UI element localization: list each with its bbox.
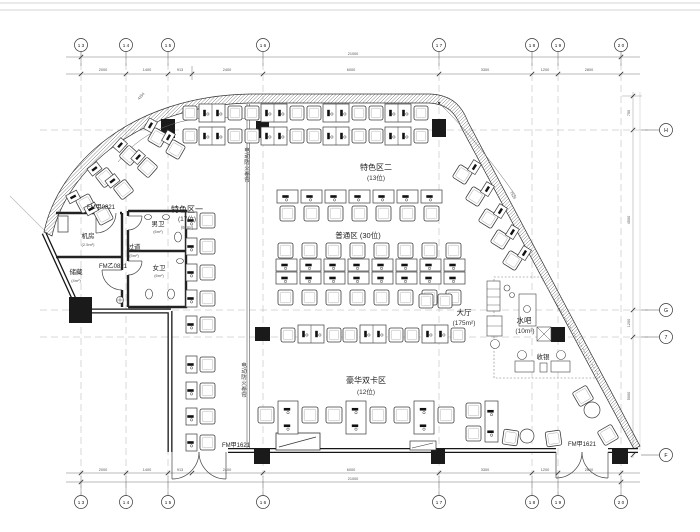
chair — [183, 106, 197, 120]
chair — [352, 106, 366, 120]
desk — [346, 401, 366, 434]
grid-bubble-top-2: 1 5 — [165, 43, 172, 48]
column — [255, 327, 270, 341]
room-label-jifang: 机房 — [82, 231, 95, 240]
chair — [302, 243, 317, 258]
zone-label-tese1-name: 特色区一 — [171, 204, 203, 214]
chair — [200, 409, 215, 424]
floor-plan-drawing: 1 3 1 4 1 5 1 6 1 7 1 8 1 9 2 0 1 3 1 4 … — [0, 0, 700, 532]
grid-bubble-bottom-5: 1 8 — [529, 500, 536, 505]
chair — [350, 290, 365, 305]
entry-mats — [276, 433, 436, 450]
chair — [278, 290, 293, 305]
grid-bubble-bottom-1: 1 4 — [123, 500, 130, 505]
dim-top-0: 2000 — [99, 68, 107, 72]
desk — [277, 190, 298, 203]
grid-bubble-bottom-3: 1 6 — [260, 500, 267, 505]
chair — [326, 290, 341, 305]
desk — [186, 434, 197, 451]
desk — [396, 259, 417, 271]
chair — [424, 206, 439, 221]
chair — [438, 294, 452, 308]
desk — [324, 272, 345, 284]
room-label-nvwei: 女卫 — [153, 263, 167, 272]
grid-bubble-top-5: 1 8 — [529, 43, 536, 48]
fire-shutter-label-lower: 电动防火卷帘 — [241, 361, 247, 399]
desk — [300, 259, 321, 271]
grid-bubble-right-f: F — [664, 453, 667, 459]
grid-bubble-top-7: 2 0 — [618, 43, 625, 48]
chair — [451, 328, 465, 342]
room-label-chucang-area: (4m²) — [71, 278, 81, 283]
desk — [298, 325, 324, 343]
chair — [302, 290, 317, 305]
zone-label-tese2-count: (13位) — [367, 173, 385, 182]
table — [584, 402, 600, 418]
chair — [370, 407, 386, 423]
chair — [374, 290, 389, 305]
grid-bubble-top-0: 1 3 — [78, 43, 85, 48]
zone-label-tese1-count: (17位) — [178, 214, 196, 223]
column — [612, 449, 628, 464]
chair — [200, 265, 215, 280]
desk — [414, 401, 434, 434]
chair — [466, 426, 481, 441]
chair — [545, 430, 562, 447]
grid-bubble-right-h: H — [664, 128, 668, 134]
dim-top-2: 913 — [177, 68, 183, 72]
chair — [290, 106, 304, 120]
grid-bubble-top-6: 1 9 — [555, 43, 562, 48]
door-label-fm-jia-1621-right: FM甲1621 — [568, 441, 597, 448]
chair — [304, 206, 319, 221]
desk — [199, 104, 225, 122]
desk — [261, 104, 287, 122]
desk — [372, 272, 393, 284]
dim-top-6: 1200 — [541, 68, 549, 72]
linework-layer — [0, 3, 700, 509]
dim-bottom-5: 3300 — [481, 468, 489, 472]
dim-right-0: 750 — [627, 110, 631, 116]
desk — [360, 325, 386, 343]
chair — [281, 328, 295, 342]
door-label-fm-yi-0821: FM乙0821 — [99, 263, 128, 270]
grid-bubble-bottom-2: 1 5 — [165, 500, 172, 505]
door-label-fm-jia-0821: FM甲0821 — [87, 204, 116, 211]
zone-label-putong: 普通区 (30位) — [335, 230, 381, 240]
grid-bubble-top-3: 1 6 — [260, 43, 267, 48]
dim-bottom-3: 2400 — [223, 468, 231, 472]
chair — [502, 429, 519, 446]
chair — [327, 328, 341, 342]
dim-top-overall: 21000 — [348, 52, 359, 56]
chair — [597, 424, 619, 446]
chair — [200, 357, 215, 372]
desk — [278, 401, 298, 434]
chair — [400, 206, 415, 221]
desk — [420, 259, 441, 271]
desk — [421, 190, 442, 203]
chair — [419, 294, 433, 308]
chair — [438, 407, 454, 423]
chair — [228, 106, 242, 120]
grid-bubble-right-7: 7 — [665, 335, 668, 341]
dim-bottom-0: 2000 — [99, 468, 107, 472]
desk — [301, 190, 322, 203]
desk — [385, 104, 411, 122]
desk — [186, 356, 197, 373]
room-label-guodao: 过道 — [128, 242, 142, 251]
desk — [397, 190, 418, 203]
chair — [307, 106, 321, 120]
zone-label-shuiba-area: (10m²) — [515, 328, 534, 335]
chair — [369, 106, 383, 120]
dim-bottom-2: 913 — [177, 468, 183, 472]
chair — [374, 243, 389, 258]
furniture-layer — [66, 104, 619, 451]
desk — [349, 190, 370, 203]
grid-bubble-bottom-0: 1 3 — [78, 500, 85, 505]
radius-annotation-left: 4254 — [137, 92, 146, 101]
chair — [369, 129, 383, 143]
column — [431, 449, 445, 464]
table — [520, 429, 534, 443]
chair — [422, 243, 437, 258]
dim-top-4: 6000 — [347, 68, 355, 72]
desk — [276, 259, 297, 271]
water-bar-area — [487, 277, 600, 378]
chair — [398, 290, 413, 305]
chair — [326, 407, 342, 423]
desk — [323, 104, 349, 122]
zone-label-shouyin: 收银 — [537, 352, 551, 361]
chair — [200, 239, 215, 254]
chair — [328, 206, 343, 221]
zone-label-haohua-name: 豪华双卡区 — [346, 375, 386, 385]
room-label-nvwei-area: (6m²) — [154, 273, 164, 278]
chair — [245, 129, 259, 143]
zone-label-tese2-name: 特色区二 — [360, 162, 392, 172]
chair — [389, 328, 403, 342]
chair — [466, 403, 481, 418]
grid-bubble-bottom-4: 1 7 — [436, 500, 443, 505]
dim-bottom-7: 2800 — [585, 468, 593, 472]
chair — [200, 291, 215, 306]
desk — [186, 290, 197, 307]
zone-label-tese1-area: (67m²) — [181, 225, 194, 230]
chair — [278, 243, 293, 258]
chair — [290, 129, 304, 143]
dim-bottom-1: 1400 — [143, 468, 151, 472]
dim-top-3: 2400 — [223, 68, 231, 72]
room-label-chucang: 储藏 — [70, 267, 84, 276]
chair — [326, 243, 341, 258]
room-label-nanwei: 男卫 — [152, 220, 166, 228]
grid-bubble-right-g: G — [664, 308, 668, 314]
dim-bottom-overall: 21000 — [348, 477, 359, 481]
desk — [422, 325, 448, 343]
desk — [186, 238, 197, 255]
chair — [200, 383, 215, 398]
grid-bubble-top-4: 1 7 — [436, 43, 443, 48]
desk — [186, 382, 197, 399]
column — [254, 449, 270, 464]
desk — [300, 272, 321, 284]
desk — [261, 127, 287, 145]
desk — [186, 408, 197, 425]
chair — [414, 106, 428, 120]
dim-bottom-6: 1200 — [541, 468, 549, 472]
chair — [200, 435, 215, 450]
chair — [280, 206, 295, 221]
dim-right-2: 1200 — [627, 319, 631, 327]
zone-label-dating-area: (175m²) — [453, 320, 476, 327]
desk — [348, 259, 369, 271]
desk — [420, 272, 441, 284]
dim-top-1: 1400 — [143, 68, 151, 72]
desk — [444, 259, 465, 271]
column — [551, 327, 565, 342]
dim-top-7: 2800 — [585, 68, 593, 72]
desk — [186, 316, 197, 333]
room-label-nanwei-area: (6m²) — [153, 229, 163, 234]
fire-shutter-label-upper: 电动防火卷帘 — [244, 146, 250, 184]
chair — [245, 106, 259, 120]
chair — [446, 243, 461, 258]
desk — [385, 127, 411, 145]
chair — [302, 407, 318, 423]
exterior-wall-band — [44, 94, 640, 449]
desk — [323, 127, 349, 145]
column — [69, 297, 92, 323]
chair — [352, 129, 366, 143]
room-label-guodao-area: (5m²) — [129, 253, 139, 258]
desk — [276, 272, 297, 284]
desk — [186, 264, 197, 281]
grid-bubble-bottom-6: 1 9 — [555, 500, 562, 505]
desk — [485, 401, 498, 442]
desk — [325, 190, 346, 203]
floor-plan-svg: 1 3 1 4 1 5 1 6 1 7 1 8 1 9 2 0 1 3 1 4 … — [0, 0, 700, 532]
dim-right-1: 4500 — [627, 216, 631, 224]
chair — [183, 129, 197, 143]
chair — [343, 328, 357, 342]
chair — [376, 206, 391, 221]
zone-label-shuiba-name: 水吧 — [517, 315, 532, 325]
desk — [396, 272, 417, 284]
grid-bubble-top-1: 1 4 — [123, 43, 130, 48]
door-label-fm-jia-1621-left: FM甲1621 — [222, 442, 251, 449]
radius-annotation-right: 7625 — [509, 191, 517, 200]
desk — [373, 190, 394, 203]
dim-top-5: 3300 — [481, 68, 489, 72]
chair — [350, 243, 365, 258]
desk — [372, 259, 393, 271]
desk — [348, 272, 369, 284]
desk — [199, 127, 225, 145]
desk — [444, 272, 465, 284]
zone-label-dating-name: 大厅 — [457, 307, 472, 317]
dim-bottom-4: 6000 — [347, 468, 355, 472]
room-label-jifang-area: (2.5m²) — [82, 242, 96, 247]
chair — [228, 129, 242, 143]
chair — [398, 243, 413, 258]
chair — [200, 317, 215, 332]
chair — [352, 206, 367, 221]
chair — [414, 129, 428, 143]
chair — [258, 407, 274, 423]
column — [432, 119, 446, 137]
chair — [200, 213, 215, 228]
chair — [405, 328, 419, 342]
grid-bubble-bottom-7: 2 0 — [618, 500, 625, 505]
zone-label-haohua-count: (12位) — [357, 387, 375, 396]
desk — [324, 259, 345, 271]
chair — [307, 129, 321, 143]
dim-right-3: 5000 — [627, 392, 631, 400]
chair — [394, 407, 410, 423]
